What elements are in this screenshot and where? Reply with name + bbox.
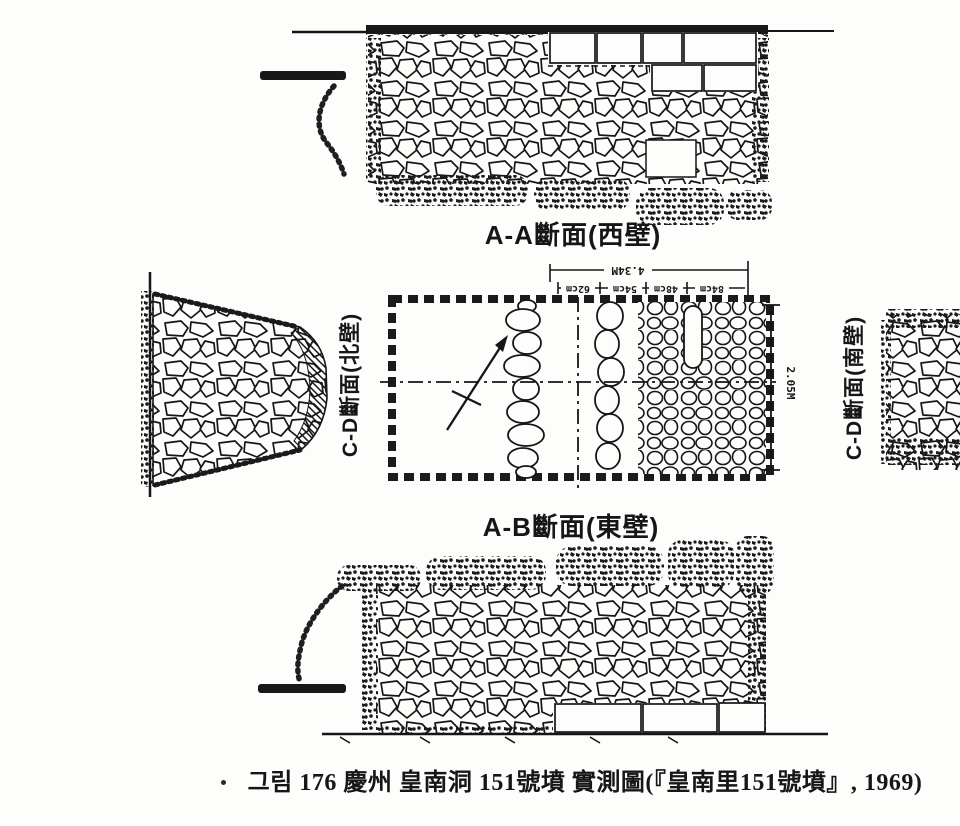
paving-stone-column-a [504,300,544,478]
wall-notch [646,140,696,177]
plan-view-drawing [380,261,780,492]
label-section-south-wall: C-D斷面(南壁) [838,296,872,480]
ground-hatch-ticks [340,737,678,743]
left-ledge-bar [260,71,346,80]
dim-segment-3: 48cm [649,282,683,294]
label-section-west-wall: A-A斷面(西壁) [423,220,723,250]
dim-segment-4: 84cm [695,282,729,294]
tomb-survey-drawing [0,0,960,826]
base-blocks [553,703,765,734]
rubble-trail [319,86,344,174]
south-wall-section-drawing [881,309,960,470]
north-wall-section-drawing [141,272,327,497]
wall-masonry [153,294,327,485]
dim-total-width: 4.34M [604,263,652,277]
scanned-figure-page: A-A斷面(西壁) A-B斷面(東壁) C-D斷面(北壁) C-D斷面(南壁) … [0,0,960,826]
paving-stone-column-b [595,302,624,469]
rubble-trail [298,586,342,682]
label-section-north-wall: C-D斷面(北壁) [334,293,368,477]
figure-caption: 그림 176 慶州 皇南洞 151號墳 實測圖(『皇南里151號墳』, 1969… [205,762,960,797]
dim-segment-1: 62cm [561,282,595,294]
label-section-east-wall: A-B斷面(東壁) [421,512,721,542]
west-wall-section-drawing [260,25,834,225]
left-ledge-bar [258,684,346,693]
dim-height: 2.05M [783,359,797,407]
east-wall-section-drawing [258,536,828,743]
dim-segment-2: 54cm [608,282,642,294]
